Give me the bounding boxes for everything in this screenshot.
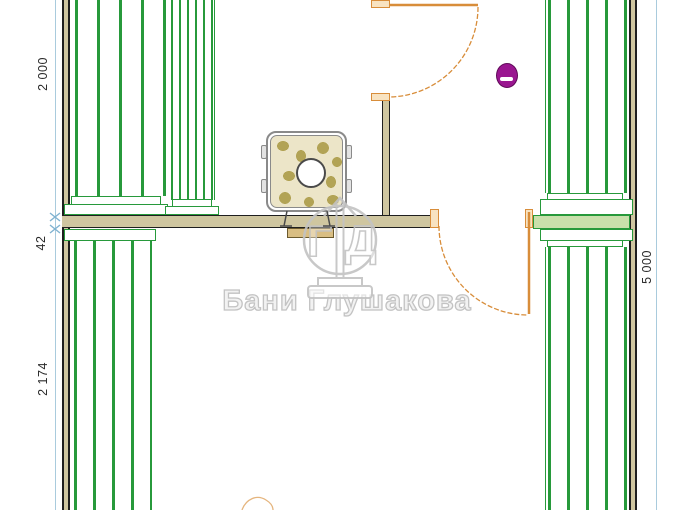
wall-logs-top-left-inner: [167, 0, 215, 200]
wall-cap: [540, 199, 633, 215]
door-swing-arc-top: [389, 7, 478, 97]
door-jamb-top-door-upper: [371, 0, 390, 8]
logo-letter-d: Д: [345, 217, 376, 266]
wall-log-edge-line: [624, 247, 626, 510]
dimension-label-left-top: 2 000: [36, 57, 50, 91]
wall-logs-bottom-right: [545, 247, 629, 510]
floor-plan-canvas: 2 000 42 2 174 5 000: [0, 0, 690, 510]
wall-logs-top-left-outer: [70, 0, 167, 196]
wall-logs-bottom-left: [70, 241, 152, 510]
wall-left-exterior: [62, 0, 70, 510]
door-jamb-middle-door-left: [430, 209, 439, 228]
light-fixture-slot: [500, 77, 513, 81]
stove-chimney-hole: [296, 158, 326, 188]
dimension-label-right: 5 000: [640, 250, 654, 284]
wall-cap: [165, 206, 219, 215]
wall-log-edge-line: [624, 0, 626, 193]
logo-base-step: [318, 278, 362, 286]
dimension-line-left: [55, 0, 56, 510]
logo-letter-g: Г: [307, 217, 332, 266]
dimension-label-left-bottom: 2 174: [36, 362, 50, 396]
dimension-label-left-middle: 42: [34, 236, 48, 251]
stove-handle: [261, 145, 267, 159]
interior-wall-horizontal-right: [533, 215, 630, 229]
logo-base: [308, 286, 372, 298]
wall-logs-top-right: [545, 0, 629, 193]
wall-cap: [64, 204, 168, 215]
wall-right-exterior: [629, 0, 637, 510]
stove-handle: [346, 145, 352, 159]
watermark-logo: Г Д: [296, 186, 388, 302]
door-swing-arc-bottom-partial: [242, 497, 273, 510]
stove-handle: [261, 179, 267, 193]
light-fixture-icon: [496, 63, 518, 88]
wall-cap: [64, 229, 156, 241]
door-jamb-middle-door-right: [525, 209, 533, 228]
door-jamb-top-door-lower: [371, 93, 390, 101]
wall-cap: [547, 240, 623, 247]
dimension-line-right: [656, 0, 657, 510]
